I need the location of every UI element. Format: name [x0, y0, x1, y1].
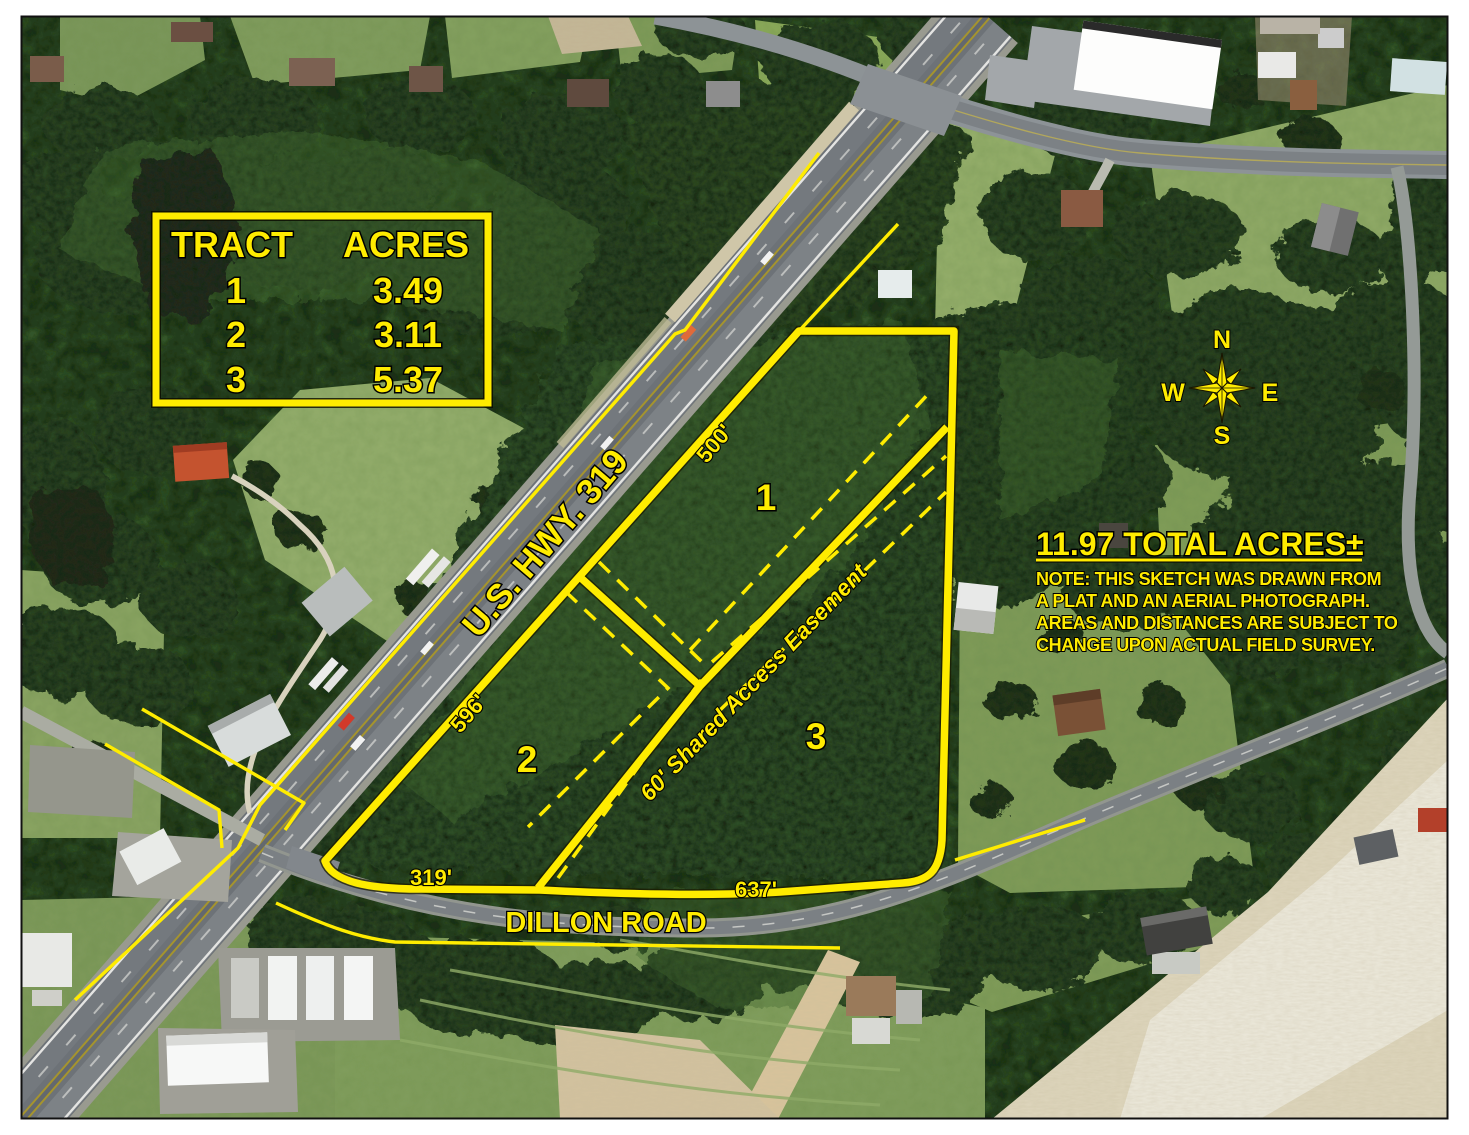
svg-text:11.97 TOTAL ACRES±: 11.97 TOTAL ACRES± [1036, 526, 1364, 562]
svg-text:3: 3 [226, 359, 246, 400]
svg-text:CHANGE UPON ACTUAL FIELD SURVE: CHANGE UPON ACTUAL FIELD SURVEY. [1036, 635, 1375, 655]
svg-text:TRACT: TRACT [171, 224, 293, 265]
svg-text:E: E [1262, 379, 1279, 407]
svg-text:ACRES: ACRES [343, 224, 469, 265]
svg-text:2: 2 [517, 739, 538, 780]
svg-text:S: S [1214, 422, 1231, 450]
svg-text:DILLON ROAD: DILLON ROAD [505, 907, 706, 939]
svg-text:N: N [1213, 326, 1231, 354]
svg-text:NOTE: THIS SKETCH WAS DRAWN FR: NOTE: THIS SKETCH WAS DRAWN FROM [1036, 569, 1381, 589]
svg-text:AREAS AND DISTANCES ARE SUBJEC: AREAS AND DISTANCES ARE SUBJECT TO [1036, 613, 1398, 633]
svg-text:3: 3 [806, 716, 827, 757]
svg-text:2: 2 [226, 314, 246, 355]
svg-text:W: W [1161, 379, 1185, 407]
svg-text:3.49: 3.49 [373, 270, 443, 311]
svg-text:1: 1 [226, 270, 246, 311]
svg-text:319': 319' [410, 865, 452, 890]
svg-text:637': 637' [735, 877, 777, 902]
svg-text:1: 1 [756, 477, 777, 518]
svg-text:A PLAT AND AN AERIAL PHOTOGRAP: A PLAT AND AN AERIAL PHOTOGRAPH. [1036, 591, 1370, 611]
svg-text:3.11: 3.11 [374, 314, 442, 355]
svg-text:5.37: 5.37 [373, 359, 443, 400]
